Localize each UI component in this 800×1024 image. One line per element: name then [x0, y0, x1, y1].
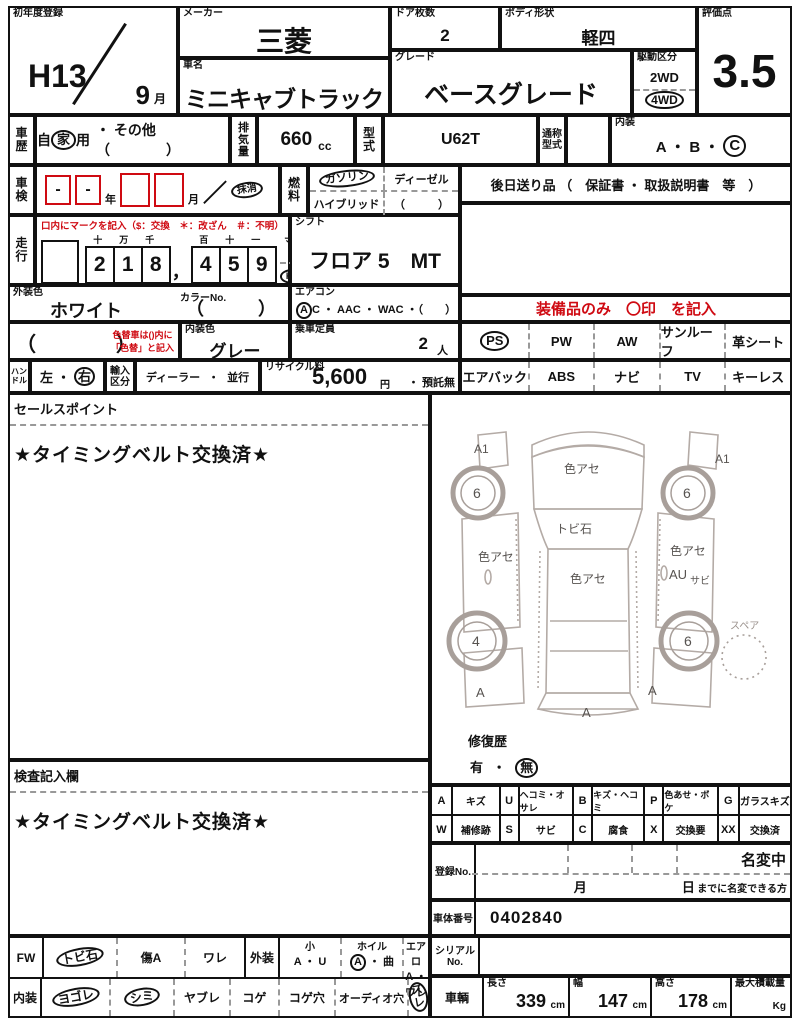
later-items-cell: 後日送り品 （ 保証書 ・ 取扱説明書 等 ）	[460, 165, 792, 203]
fw-scratch: 傷A	[116, 938, 184, 977]
doors-cell: ドア枚数 2	[390, 6, 500, 50]
height-label: 高さ	[655, 979, 675, 990]
diagram-roof-label: 色アセ	[570, 572, 606, 586]
repaint-note-2: 「色替」と記入	[111, 341, 174, 354]
shaken-cell: - - 年 月 ／ 抹消	[35, 165, 280, 215]
color-no-paren: （ ）	[186, 295, 276, 321]
drive-4wd: 4WD	[645, 91, 684, 109]
registration-note: までに名変できる方	[697, 880, 787, 895]
grade-label: グレード	[395, 53, 435, 64]
shift-cell: シフト フロア 5 MT	[290, 215, 460, 285]
odo-header-10: 十	[217, 233, 243, 246]
repair-history-label: 修復歴	[468, 731, 507, 750]
legend-code: G	[717, 787, 738, 814]
displacement-unit: cc	[318, 139, 331, 153]
displacement-value: 660	[280, 129, 312, 151]
inspection-label: 検査記入欄	[10, 762, 428, 793]
score-value: 3.5	[699, 8, 790, 123]
odo-header-10k: 万	[111, 233, 137, 246]
registration-divider	[567, 845, 569, 873]
sales-point-section: セールスポイント ★タイミングベルト交換済★	[8, 393, 430, 760]
aircon-ac-circled: A	[296, 302, 312, 319]
equipment-row-1: PS PW AW サンルーフ 革シート	[460, 322, 792, 360]
odo-header-100: 百	[191, 233, 217, 246]
diagram-spare-label: スペア	[730, 621, 759, 632]
diagram-right-upper-label: 色アセ	[670, 544, 706, 558]
aircon-rest: C ・ AAC ・ WAC ・（ ）	[312, 304, 456, 316]
registration-label: 登録No.	[432, 845, 476, 900]
common-model-label: 通称型式	[538, 115, 566, 165]
exterior-color-label: 外装色	[13, 288, 43, 299]
body-shape-cell: ボディ形状 軽四	[500, 6, 697, 50]
payload-unit: Kg	[773, 1001, 786, 1012]
displacement-cell: 660 cc	[257, 115, 355, 165]
vehicle-label: 車輌	[432, 978, 484, 1016]
int-dirt-circled: ヨゴレ	[50, 984, 100, 1010]
car-diagram-svg: A1 A1 色アセ トビ石 色アセ 色アセ AU サビ 色アセ 6 6 4 6 …	[432, 401, 790, 731]
drive-type-cell: 駆動区分 2WD 4WD	[632, 50, 697, 115]
history-cell: 自家用 ・ その他 （ ）	[35, 115, 230, 165]
recycle-cell: リサイクル料 5,600 円 ・ 預託無	[260, 360, 460, 393]
car-diagram-cell: A1 A1 色アセ トビ石 色アセ 色アセ AU サビ 色アセ 6 6 4 6 …	[430, 393, 792, 785]
first-reg-month: 9	[136, 80, 150, 111]
legend-desc: キズ	[451, 787, 499, 814]
history-other: ・ その他 （ ）	[96, 120, 228, 160]
equip-ps: PS	[480, 331, 509, 351]
interior-grade-cell: 内装 A ・ B ・ C	[610, 115, 792, 165]
shaken-box-1: -	[45, 175, 71, 205]
auction-sheet: 初年度登録 H13 9 月 メーカー 三菱 車名 ミニキャブトラック ドア枚数 …	[0, 0, 800, 1024]
equipment-note: 装備品のみ 〇印 を記入	[460, 295, 792, 322]
fw-crack: ワレ	[184, 938, 244, 977]
shaken-label: 車検	[8, 165, 35, 215]
remarks-empty-cell	[460, 203, 792, 295]
displacement-label: 排気量	[230, 115, 257, 165]
height-unit: cm	[713, 1000, 727, 1011]
recycle-yen: 円	[380, 376, 390, 391]
legend-desc: 色あせ・ボケ	[662, 787, 716, 814]
model-label: 型式	[355, 115, 383, 165]
diagram-a-center: A	[582, 705, 591, 720]
width-unit: cm	[633, 1000, 647, 1011]
wheel-rest: ・ 曲	[369, 956, 394, 968]
repair-history-yes: 有	[470, 760, 483, 775]
interior-color-label: 内装色	[185, 325, 215, 336]
fuel-paren: （ ）	[383, 192, 458, 215]
name-change-status: 名変中	[741, 849, 786, 870]
width-label: 幅	[573, 979, 583, 990]
legend-code: X	[643, 816, 662, 843]
odo-header-1k: 千	[137, 233, 163, 246]
inspection-section: 検査記入欄 ★タイミングベルト交換済★	[8, 760, 430, 936]
odo-digit-6: 9	[249, 246, 277, 284]
diagram-hood-label: 色アセ	[564, 462, 600, 476]
shaken-year-unit: 年	[105, 191, 116, 207]
repair-history-dot: ・	[493, 760, 506, 775]
aero-label: エアロ	[404, 938, 428, 968]
diagram-right-rust: サビ	[690, 575, 710, 587]
recycle-value: 5,600	[312, 364, 367, 390]
odo-digit-1: 2	[85, 246, 115, 284]
import-dealer: ディーラー	[146, 369, 200, 385]
shaken-box-2: -	[75, 175, 101, 205]
serial-label: シリアルNo.	[432, 938, 480, 976]
interior-grade-selected: C	[723, 135, 746, 157]
recycle-deposit: ・ 預託無	[408, 374, 455, 390]
wheel-label: ホイル	[342, 938, 402, 953]
height-value: 178	[678, 991, 708, 1012]
history-private-circled: 家	[51, 130, 76, 150]
int-tear: ヤブレ	[173, 979, 229, 1016]
ext-small-label: 小	[280, 938, 340, 953]
history-private-3: 用	[76, 130, 90, 150]
aircon-cell: エアコン AC ・ AAC ・ WAC ・（ ）	[290, 285, 460, 322]
legend-code: W	[432, 816, 451, 843]
int-burn-hole: コゲ穴	[278, 979, 334, 1016]
car-name-label: 車名	[183, 61, 203, 72]
import-cell: ディーラー ・ 並行	[135, 360, 260, 393]
body-shape-label: ボディ形状	[505, 9, 554, 20]
equip-keyless: キーレス	[724, 362, 790, 391]
diagram-a-left: A	[476, 685, 485, 700]
grade-cell: グレード ベースグレード	[390, 50, 632, 115]
drive-type-label: 駆動区分	[637, 53, 677, 64]
interior-grade-label: 内装	[615, 118, 635, 129]
shaken-box-3	[120, 173, 150, 207]
handle-left: 左	[40, 367, 53, 386]
diagram-wheel-fl: 6	[473, 485, 481, 501]
length-label: 長さ	[487, 979, 507, 990]
repaint-cell: （ ） 色替車は()内に 「色替」と記入	[8, 322, 180, 360]
capacity-value: 2	[419, 334, 428, 354]
equip-leather: 革シート	[724, 324, 790, 358]
legend-code: A	[432, 787, 451, 814]
diagram-a1-right: A1	[715, 452, 730, 466]
legend-code: C	[572, 816, 591, 843]
history-private-1: 自	[37, 130, 51, 150]
legend-desc: ヘコミ・オサレ	[518, 787, 572, 814]
chassis-label: 車体番号	[432, 902, 476, 936]
legend-desc: ガラスキズ	[738, 787, 790, 814]
ext-small-opts: A ・ U	[280, 953, 340, 969]
first-reg-year: H13	[28, 58, 87, 95]
int-misalign-circled: ズレ	[407, 981, 431, 1014]
chassis-value: 0402840	[490, 908, 563, 928]
legend-code: P	[643, 787, 662, 814]
handle-cell: 左 ・ 右	[30, 360, 105, 393]
legend-table: A キズ U ヘコミ・オサレ B キズ・ヘコミ P 色あせ・ボケ G ガラスキズ…	[430, 785, 792, 843]
interior-grade-pre: A ・ B ・	[656, 136, 720, 157]
equip-abs: ABS	[528, 362, 594, 391]
history-label: 車歴	[8, 115, 35, 165]
car-name-cell: 車名 ミニキャブトラック	[178, 58, 390, 115]
legend-desc: 交換要	[662, 816, 716, 843]
width-value: 147	[598, 991, 628, 1012]
exterior-color-cell: 外装色 ホワイト カラーNo. （ ）	[8, 285, 290, 322]
capacity-unit: 人	[437, 342, 448, 358]
odo-digit-2: 1	[115, 246, 143, 284]
sales-point-text: ★タイミングベルト交換済★	[10, 426, 428, 481]
diagram-wheel-rr: 6	[684, 633, 692, 649]
equip-tv: TV	[659, 362, 725, 391]
fuel-diesel: ディーゼル	[383, 167, 458, 190]
equip-pw: PW	[528, 324, 594, 358]
odo-digit-4: 4	[191, 246, 221, 284]
drive-4wd-wrap: 4WD	[634, 87, 695, 113]
odo-digit-5: 5	[221, 246, 249, 284]
registration-divider	[631, 845, 633, 873]
legend-code: S	[499, 816, 518, 843]
shaken-box-4	[154, 173, 184, 207]
vehicle-dims-cell: 車輌 長さ 339 cm 幅 147 cm 高さ 178 cm 最大積載量 Kg	[430, 976, 792, 1018]
diagram-a1-left: A1	[474, 442, 489, 456]
legend-desc: キズ・ヘコミ	[591, 787, 643, 814]
doors-label: ドア枚数	[395, 9, 435, 20]
repaint-note-1: 色替車は()内に	[111, 328, 174, 341]
odometer-note: 口内にマークを記入（$：交換 ＊：改ざん ＃：不明）	[41, 218, 292, 232]
import-sep: ・	[208, 369, 219, 385]
length-unit: cm	[551, 1000, 565, 1011]
legend-code: XX	[717, 816, 738, 843]
shaken-month-unit: 月	[188, 191, 199, 207]
interior-row-label: 内装	[10, 979, 42, 1016]
odo-header-1: 一	[243, 233, 269, 246]
import-label: 輸入区分	[105, 360, 135, 393]
fuel-hybrid: ハイブリッド	[310, 192, 383, 215]
capacity-label: 乗車定員	[295, 325, 335, 336]
odometer-mark-box	[41, 240, 79, 284]
legend-code: B	[572, 787, 591, 814]
first-reg-month-unit: 月	[154, 90, 166, 107]
diagram-right-mark: AU	[669, 567, 687, 582]
odo-digit-3: 8	[143, 246, 171, 284]
score-cell: 評価点 3.5	[697, 6, 792, 115]
exterior-label: 外装	[244, 938, 280, 977]
equip-airbag: エアバック	[462, 362, 528, 391]
registration-day: 日	[682, 877, 695, 896]
odo-header-100k: 十	[85, 233, 111, 246]
payload-label: 最大積載量	[735, 979, 785, 990]
odo-comma: ，	[172, 258, 190, 284]
int-audio-hole: オーディオ穴	[334, 979, 407, 1016]
registration-cell: 登録No. 名変中 月 日 までに名変できる方	[430, 843, 792, 900]
fw-stone-chip-circled: トビ石	[55, 944, 105, 970]
fuel-cell: ガソリン ディーゼル ハイブリッド （ ）	[308, 165, 460, 215]
inspection-text: ★タイミングベルト交換済★	[10, 793, 428, 848]
int-burn: コゲ	[229, 979, 278, 1016]
handle-sep: ・	[57, 367, 70, 386]
equip-navi: ナビ	[593, 362, 659, 391]
legend-desc: 交換済	[738, 816, 790, 843]
shift-label: シフト	[295, 218, 325, 229]
diagram-wheel-rl: 4	[472, 633, 480, 649]
legend-desc: 腐食	[591, 816, 643, 843]
condition-table: FW トビ石 傷A ワレ 外装 小 A ・ U ホイル A ・ 曲 エアロ A …	[8, 936, 430, 1018]
fuel-gasoline: ガソリン	[318, 167, 375, 190]
int-stain-circled: シミ	[123, 985, 162, 1009]
diagram-a-right: A	[648, 683, 657, 698]
diagram-left-door-label: 色アセ	[478, 550, 514, 564]
length-value: 339	[516, 991, 546, 1012]
handle-right-circled: 右	[74, 367, 95, 387]
capacity-cell: 乗車定員 2 人	[290, 322, 460, 360]
first-reg-label: 初年度登録	[13, 9, 63, 20]
diagram-wheel-fr: 6	[683, 485, 691, 501]
fw-label: FW	[10, 938, 44, 977]
exterior-color-value: ホワイト	[50, 297, 122, 323]
diagram-windshield-label: トビ石	[556, 522, 592, 536]
interior-color-cell: 内装色 グレー	[180, 322, 290, 360]
chassis-cell: 車体番号 0402840	[430, 900, 792, 936]
shaken-slash: ／	[203, 173, 227, 208]
registration-month: 月	[574, 877, 587, 896]
equipment-row-2: エアバック ABS ナビ TV キーレス	[460, 360, 792, 393]
legend-desc: 補修跡	[451, 816, 499, 843]
mileage-label: 走行	[8, 215, 35, 285]
common-model-value	[566, 115, 610, 165]
serial-cell: シリアルNo.	[430, 936, 792, 976]
maker-cell: メーカー 三菱	[178, 6, 390, 58]
sales-point-label: セールスポイント	[10, 395, 428, 426]
mileage-cell: 口内にマークを記入（$：交換 ＊：改ざん ＃：不明） 十万千 2 1 8 ， 百…	[35, 215, 290, 285]
model-value: U62T	[383, 115, 538, 165]
fuel-label: 燃料	[280, 165, 308, 215]
repair-history-no-circled: 無	[515, 758, 538, 778]
handle-label: ハンドル	[8, 360, 30, 393]
car-name-value: ミニキャブトラック	[180, 60, 388, 123]
score-label: 評価点	[702, 9, 732, 20]
legend-desc: サビ	[518, 816, 572, 843]
legend-code: U	[499, 787, 518, 814]
registration-divider	[676, 845, 678, 873]
import-parallel: 並行	[227, 369, 249, 385]
aircon-label: エアコン	[295, 288, 335, 299]
first-registration-cell: 初年度登録 H13 9 月	[8, 6, 178, 115]
equip-sunroof: サンルーフ	[659, 324, 725, 358]
shaken-removed: 抹消	[230, 180, 264, 200]
equip-aw: AW	[593, 324, 659, 358]
wheel-a-circled: A	[350, 954, 366, 971]
maker-label: メーカー	[183, 9, 223, 20]
